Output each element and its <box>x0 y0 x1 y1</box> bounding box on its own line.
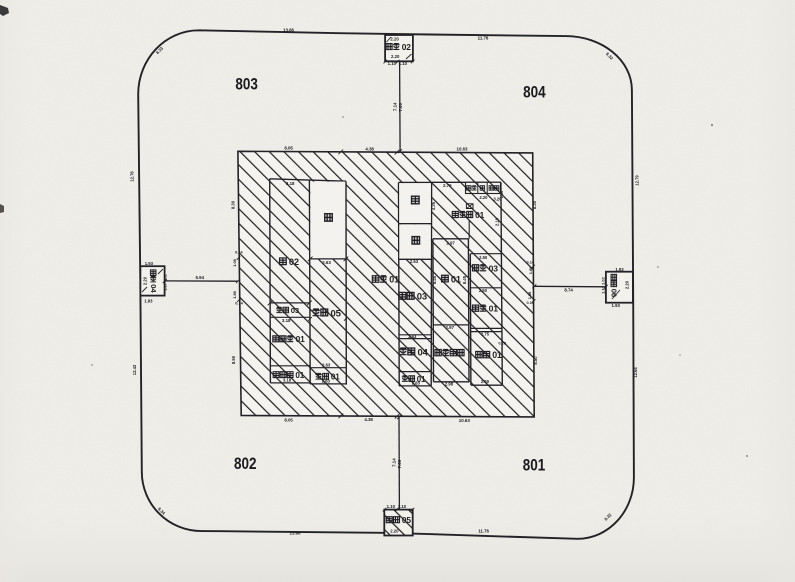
svg-text:10.63: 10.63 <box>459 418 471 423</box>
svg-text:7.00: 7.00 <box>397 459 402 468</box>
svg-text:10.63: 10.63 <box>457 147 469 152</box>
svg-text:1.17 1.02: 1.17 1.02 <box>601 276 606 293</box>
svg-text:01: 01 <box>331 373 340 382</box>
svg-text:804: 804 <box>523 83 546 101</box>
svg-text:2.20: 2.20 <box>624 280 629 289</box>
svg-text:2.50: 2.50 <box>481 379 490 384</box>
svg-text:11.76: 11.76 <box>478 36 489 41</box>
svg-text:3.18: 3.18 <box>286 181 295 186</box>
svg-text:8.05: 8.05 <box>284 417 293 422</box>
svg-text:8.45: 8.45 <box>432 275 437 284</box>
svg-text:8.45: 8.45 <box>462 275 467 284</box>
svg-text:7.14: 7.14 <box>393 102 398 111</box>
svg-text:7.14: 7.14 <box>392 458 397 467</box>
svg-text:01: 01 <box>296 334 306 344</box>
svg-text:12.43: 12.43 <box>132 364 137 375</box>
svg-text:01: 01 <box>295 371 304 380</box>
svg-text:2.75: 2.75 <box>481 332 490 337</box>
svg-text:02: 02 <box>289 257 299 267</box>
svg-text:8.74: 8.74 <box>564 287 573 292</box>
svg-text:1.10: 1.10 <box>388 61 397 66</box>
svg-text:1.93: 1.93 <box>612 303 621 308</box>
svg-text:01: 01 <box>489 304 499 314</box>
svg-text:2.76: 2.76 <box>443 183 452 188</box>
svg-text:1.88: 1.88 <box>527 291 532 299</box>
svg-text:7.00: 7.00 <box>398 103 403 112</box>
svg-text:2.20: 2.20 <box>142 276 147 285</box>
svg-text:0.14: 0.14 <box>235 250 243 255</box>
svg-text:2.50: 2.50 <box>479 288 488 293</box>
svg-text:12.64: 12.64 <box>633 367 638 378</box>
svg-text:2.63: 2.63 <box>322 363 331 368</box>
svg-text:2.63: 2.63 <box>412 380 421 385</box>
svg-text:2.97: 2.97 <box>446 241 455 246</box>
svg-text:02: 02 <box>402 42 412 52</box>
svg-text:8.30: 8.30 <box>231 200 236 209</box>
svg-text:8.30: 8.30 <box>532 200 537 209</box>
svg-text:1.08: 1.08 <box>232 258 237 266</box>
svg-text:01: 01 <box>475 210 485 220</box>
svg-text:12.76: 12.76 <box>130 171 135 182</box>
svg-text:03: 03 <box>291 306 299 315</box>
svg-text:3.18: 3.18 <box>283 378 292 383</box>
svg-text:2.20: 2.20 <box>479 195 488 200</box>
svg-text:13.66: 13.66 <box>290 531 302 536</box>
svg-text:803: 803 <box>235 76 258 94</box>
svg-text:06: 06 <box>610 289 619 297</box>
svg-text:4.38: 4.38 <box>364 417 373 422</box>
svg-text:03: 03 <box>489 263 499 273</box>
svg-text:8.50: 8.50 <box>231 355 236 364</box>
svg-text:05: 05 <box>402 515 412 525</box>
svg-text:8.05: 8.05 <box>284 146 293 151</box>
svg-text:8.50: 8.50 <box>533 356 538 365</box>
svg-text:04: 04 <box>149 284 158 293</box>
svg-text:3.18: 3.18 <box>282 318 291 323</box>
svg-text:1.10: 1.10 <box>387 504 396 509</box>
svg-text:2.98: 2.98 <box>445 381 454 386</box>
svg-text:2.63: 2.63 <box>322 379 331 384</box>
svg-text:03: 03 <box>417 292 427 303</box>
svg-text:01: 01 <box>451 274 461 284</box>
svg-text:05: 05 <box>331 308 342 319</box>
svg-text:2.63: 2.63 <box>410 259 419 264</box>
svg-text:0.14: 0.14 <box>527 260 535 265</box>
svg-text:2.63: 2.63 <box>322 260 331 265</box>
svg-text:1.88: 1.88 <box>232 290 237 298</box>
svg-text:2.10: 2.10 <box>495 217 500 226</box>
svg-text:2.20: 2.20 <box>390 36 399 41</box>
svg-text:4.38: 4.38 <box>365 146 374 151</box>
svg-text:01: 01 <box>389 275 399 285</box>
svg-text:11.76: 11.76 <box>478 529 489 534</box>
svg-text:13.66: 13.66 <box>283 28 295 33</box>
svg-text:0.14: 0.14 <box>235 301 243 306</box>
svg-text:2.97: 2.97 <box>446 325 455 330</box>
svg-text:04: 04 <box>418 347 429 358</box>
svg-text:1.93: 1.93 <box>144 299 153 304</box>
svg-text:5.94: 5.94 <box>196 275 205 280</box>
svg-text:2.20: 2.20 <box>391 54 400 59</box>
svg-text:2.10: 2.10 <box>499 190 504 199</box>
svg-text:802: 802 <box>234 455 257 473</box>
svg-text:2.20: 2.20 <box>390 529 399 534</box>
svg-text:1.93: 1.93 <box>615 267 624 272</box>
svg-text:4.35: 4.35 <box>431 201 436 210</box>
svg-text:0.25: 0.25 <box>498 341 506 346</box>
svg-text:1.93: 1.93 <box>145 261 154 266</box>
svg-text:12.79: 12.79 <box>635 175 640 186</box>
svg-text:01: 01 <box>492 350 502 360</box>
svg-text:2.50: 2.50 <box>479 255 488 260</box>
svg-text:801: 801 <box>523 456 546 474</box>
